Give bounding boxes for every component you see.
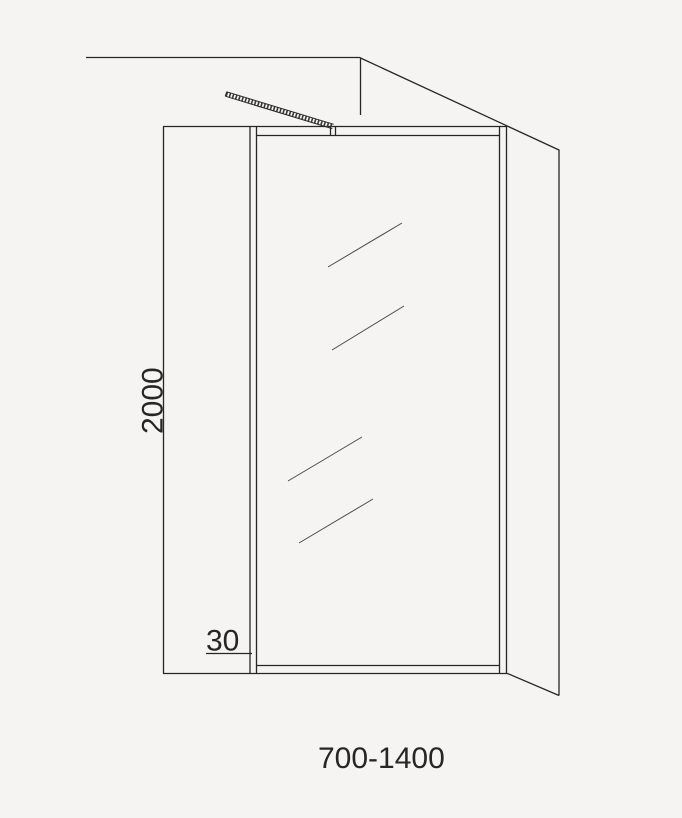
support-bar-hatching	[226, 94, 333, 127]
height-dimension-label: 2000	[137, 367, 170, 434]
width-range-dimension-label: 700-1400	[318, 742, 445, 775]
glass-reflection-lines	[288, 223, 404, 543]
drawing-svg: 2000 30 700-1400	[0, 0, 682, 818]
support-bar-upper-edge	[227, 92, 334, 125]
support-bar-lower-edge	[225, 96, 332, 129]
glass-reflection-line	[288, 437, 362, 481]
profile-width-dimension-label: 30	[206, 625, 239, 658]
support-bar	[225, 92, 333, 129]
wall-top-receding-line	[361, 58, 560, 150]
glass-reflection-line	[328, 223, 402, 267]
glass-reflection-line	[332, 306, 404, 350]
panel-frame	[163, 127, 508, 674]
wall-bottom-receding-line	[508, 674, 560, 696]
dimension-annotations: 2000 30 700-1400	[137, 367, 445, 775]
shower-panel-technical-drawing: 2000 30 700-1400	[0, 0, 682, 818]
glass-reflection-line	[299, 499, 373, 543]
